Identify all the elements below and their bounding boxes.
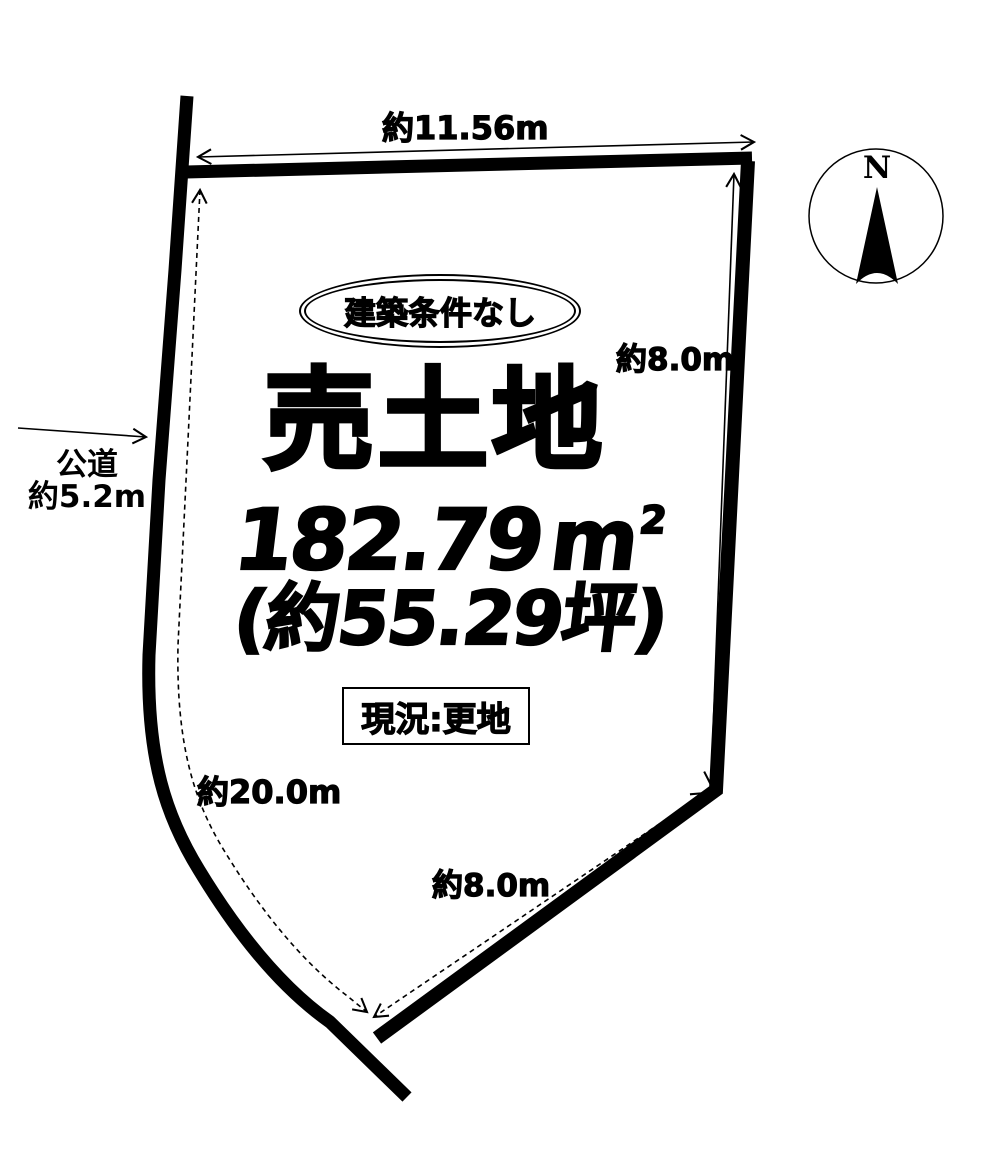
sale-title: 売土地 (264, 366, 606, 476)
plot-boundary-top (186, 158, 752, 172)
dimension-label-left: 約20.0m (197, 776, 341, 809)
area-exponent: 2 (638, 502, 666, 540)
area-tsubo: (約55.29坪) (230, 582, 671, 656)
dimension-label-right: 約8.0m (616, 344, 734, 376)
status-label: 現況:更地 (361, 692, 511, 741)
area-value: 182.79 (229, 491, 547, 589)
road-name: 公道 (15, 449, 159, 481)
land-plot-diagram: 約11.56m 約8.0m 約20.0m 約8.0m 公道 約5.2m 建築条件… (0, 0, 1000, 1161)
dimension-label-bottom: 約8.0m (432, 870, 550, 902)
no-building-conditions-badge: 建築条件なし (299, 274, 581, 348)
dimension-label-top: 約11.56m (382, 112, 549, 145)
compass-north-label: N (863, 152, 891, 184)
compass-needle (856, 187, 898, 284)
road-width: 約5.2m (15, 481, 159, 513)
status-box: 現況:更地 (342, 687, 530, 745)
road-pointer-arrow (18, 428, 146, 437)
road-label: 公道 約5.2m (15, 449, 159, 513)
badge-label: 建築条件なし (344, 288, 536, 334)
area-unit: m (545, 491, 642, 589)
area-sqm: 182.79m2 (230, 498, 666, 582)
